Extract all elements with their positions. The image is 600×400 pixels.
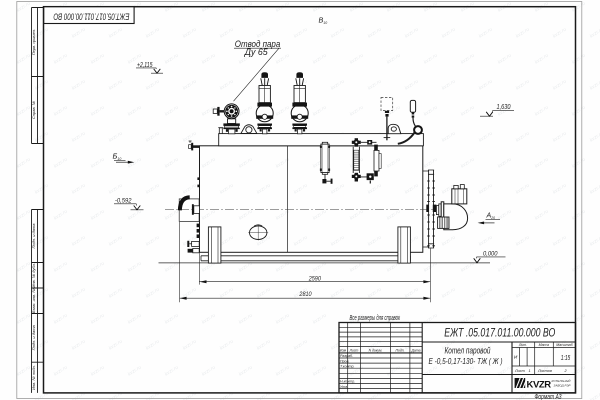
- svg-text:Справ. №: Справ. №: [31, 100, 36, 119]
- svg-text:kvzr.ru: kvzr.ru: [423, 312, 439, 325]
- svg-text:kvzr.ru: kvzr.ru: [90, 260, 106, 273]
- svg-text:kvzr.ru: kvzr.ru: [552, 130, 568, 143]
- svg-text:kvzr.ru: kvzr.ru: [275, 260, 291, 273]
- svg-text:kvzr.ru: kvzr.ru: [404, 182, 420, 195]
- svg-text:kvzr.ru: kvzr.ru: [515, 130, 531, 143]
- svg-text:kvzr.ru: kvzr.ru: [460, 260, 476, 273]
- svg-text:kvzr.ru: kvzr.ru: [16, 208, 32, 221]
- svg-text:0,000: 0,000: [483, 251, 498, 258]
- svg-text:kvzr.ru: kvzr.ru: [145, 182, 161, 195]
- svg-text:kvzr.ru: kvzr.ru: [201, 156, 217, 169]
- svg-text:Все размеры для справок: Все размеры для справок: [350, 314, 401, 322]
- svg-text:Лист: Лист: [514, 369, 525, 373]
- svg-text:1:15: 1:15: [561, 353, 571, 362]
- svg-text:kvzr.ru: kvzr.ru: [478, 234, 494, 247]
- svg-text:kvzr.ru: kvzr.ru: [127, 208, 143, 221]
- svg-text:kvzr.ru: kvzr.ru: [589, 26, 600, 39]
- svg-text:kvzr.ru: kvzr.ru: [589, 338, 600, 351]
- svg-text:kvzr.ru: kvzr.ru: [219, 26, 235, 39]
- svg-text:kvzr.ru: kvzr.ru: [404, 78, 420, 91]
- svg-text:Утв.: Утв.: [340, 385, 348, 389]
- svg-text:kvzr.ru: kvzr.ru: [534, 312, 550, 325]
- svg-text:kvzr.ru: kvzr.ru: [386, 364, 402, 377]
- svg-text:kvzr.ru: kvzr.ru: [53, 104, 69, 117]
- svg-text:kvzr.ru: kvzr.ru: [312, 260, 328, 273]
- svg-text:kvzr.ru: kvzr.ru: [404, 286, 420, 299]
- svg-text:kvzr.ru: kvzr.ru: [571, 104, 587, 117]
- svg-text:kvzr.ru: kvzr.ru: [127, 312, 143, 325]
- svg-text:Пров.: Пров.: [340, 359, 349, 363]
- svg-text:kvzr.ru: kvzr.ru: [127, 104, 143, 117]
- svg-text:kvzr.ru: kvzr.ru: [108, 182, 124, 195]
- svg-text:kvzr.ru: kvzr.ru: [367, 26, 383, 39]
- svg-text:kvzr.ru: kvzr.ru: [256, 182, 272, 195]
- svg-text:kvzr.ru: kvzr.ru: [552, 182, 568, 195]
- svg-text:kvzr.ru: kvzr.ru: [589, 286, 600, 299]
- svg-text:Е -0,5-0,17-130- ТЖ ( Ж ): Е -0,5-0,17-130- ТЖ ( Ж ): [429, 357, 503, 366]
- svg-text:Котел паровой: Котел паровой: [445, 346, 491, 356]
- svg-text:kvzr.ru: kvzr.ru: [16, 260, 32, 273]
- svg-text:kvzr.ru: kvzr.ru: [497, 364, 513, 377]
- svg-text:Масштаб: Масштаб: [556, 343, 573, 347]
- svg-text:kvzr.ru: kvzr.ru: [423, 364, 439, 377]
- svg-text:2590: 2590: [308, 275, 321, 282]
- svg-text:Лит.: Лит.: [518, 343, 527, 347]
- svg-text:2810: 2810: [299, 291, 312, 298]
- svg-text:ЕЖТ.05.017.011.00.000 ВО: ЕЖТ.05.017.011.00.000 ВО: [54, 11, 130, 21]
- svg-text:kvzr.ru: kvzr.ru: [441, 234, 457, 247]
- svg-text:kvzr.ru: kvzr.ru: [515, 182, 531, 195]
- svg-text:kvzr.ru: kvzr.ru: [108, 130, 124, 143]
- svg-text:kvzr.ru: kvzr.ru: [312, 208, 328, 221]
- svg-text:И: И: [514, 354, 518, 360]
- svg-text:kvzr.ru: kvzr.ru: [145, 338, 161, 351]
- svg-text:kvzr.ru: kvzr.ru: [108, 338, 124, 351]
- svg-text:kvzr.ru: kvzr.ru: [589, 182, 600, 195]
- svg-text:kvzr.ru: kvzr.ru: [460, 52, 476, 65]
- svg-text:kvzr.ru: kvzr.ru: [478, 78, 494, 91]
- svg-text:kvzr.ru: kvzr.ru: [515, 286, 531, 299]
- svg-text:kvzr.ru: kvzr.ru: [219, 182, 235, 195]
- svg-text:kvzr.ru: kvzr.ru: [497, 52, 513, 65]
- svg-text:kvzr.ru: kvzr.ru: [478, 286, 494, 299]
- svg-text:Масса: Масса: [539, 343, 549, 347]
- svg-text:Перв. примен.: Перв. примен.: [31, 29, 36, 56]
- svg-text:Взам. инв. №: Взам. инв. №: [31, 288, 36, 313]
- svg-text:kvzr.ru: kvzr.ru: [589, 234, 600, 247]
- svg-text:kvzr.ru: kvzr.ru: [164, 364, 180, 377]
- svg-text:kvzr.ru: kvzr.ru: [293, 234, 309, 247]
- svg-text:kvzr.ru: kvzr.ru: [460, 364, 476, 377]
- svg-text:kvzr.ru: kvzr.ru: [552, 234, 568, 247]
- svg-text:kvzr.ru: kvzr.ru: [571, 52, 587, 65]
- svg-text:В10: В10: [319, 15, 328, 25]
- svg-text:kvzr.ru: kvzr.ru: [349, 104, 365, 117]
- svg-text:kvzr.ru: kvzr.ru: [201, 52, 217, 65]
- svg-text:kvzr.ru: kvzr.ru: [16, 156, 32, 169]
- svg-text:kvzr.ru: kvzr.ru: [16, 0, 32, 13]
- svg-text:kvzr.ru: kvzr.ru: [53, 156, 69, 169]
- svg-text:kvzr.ru: kvzr.ru: [145, 26, 161, 39]
- svg-text:kvzr.ru: kvzr.ru: [312, 52, 328, 65]
- svg-text:kvzr.ru: kvzr.ru: [441, 286, 457, 299]
- svg-text:Разраб.: Разраб.: [340, 354, 353, 358]
- svg-text:kvzr.ru: kvzr.ru: [201, 364, 217, 377]
- svg-text:Лист: Лист: [349, 349, 359, 353]
- svg-text:kvzr.ru: kvzr.ru: [275, 364, 291, 377]
- svg-text:kvzr.ru: kvzr.ru: [423, 156, 439, 169]
- svg-text:kvzr.ru: kvzr.ru: [71, 78, 87, 91]
- svg-text:kvzr.ru: kvzr.ru: [238, 364, 254, 377]
- svg-text:+2,115: +2,115: [137, 60, 153, 69]
- svg-text:kvzr.ru: kvzr.ru: [275, 156, 291, 169]
- svg-text:kvzr.ru: kvzr.ru: [367, 78, 383, 91]
- svg-text:kvzr.ru: kvzr.ru: [460, 312, 476, 325]
- svg-text:Листов: Листов: [537, 369, 552, 373]
- svg-text:kvzr.ru: kvzr.ru: [238, 156, 254, 169]
- svg-text:kvzr.ru: kvzr.ru: [497, 260, 513, 273]
- svg-text:kvzr.ru: kvzr.ru: [534, 208, 550, 221]
- svg-text:КОТЕЛЬНЫЙ: КОТЕЛЬНЫЙ: [552, 379, 572, 383]
- svg-text:kvzr.ru: kvzr.ru: [108, 286, 124, 299]
- svg-text:kvzr.ru: kvzr.ru: [71, 338, 87, 351]
- svg-text:kvzr.ru: kvzr.ru: [34, 338, 50, 351]
- svg-text:kvzr.ru: kvzr.ru: [182, 182, 198, 195]
- svg-text:Подп. и дата: Подп. и дата: [31, 325, 36, 351]
- svg-text:kvzr.ru: kvzr.ru: [349, 260, 365, 273]
- svg-text:kvzr.ru: kvzr.ru: [145, 234, 161, 247]
- svg-text:kvzr.ru: kvzr.ru: [182, 26, 198, 39]
- svg-text:kvzr.ru: kvzr.ru: [201, 208, 217, 221]
- svg-text:kvzr.ru: kvzr.ru: [16, 312, 32, 325]
- svg-text:kvzr.ru: kvzr.ru: [34, 26, 50, 39]
- svg-text:2: 2: [564, 369, 568, 373]
- svg-text:kvzr.ru: kvzr.ru: [367, 286, 383, 299]
- svg-text:kvzr.ru: kvzr.ru: [34, 130, 50, 143]
- svg-text:kvzr.ru: kvzr.ru: [386, 208, 402, 221]
- svg-text:kvzr.ru: kvzr.ru: [552, 26, 568, 39]
- svg-text:kvzr.ru: kvzr.ru: [182, 338, 198, 351]
- svg-text:kvzr.ru: kvzr.ru: [108, 78, 124, 91]
- svg-text:kvzr.ru: kvzr.ru: [90, 208, 106, 221]
- svg-text:kvzr.ru: kvzr.ru: [53, 208, 69, 221]
- svg-text:kvzr.ru: kvzr.ru: [293, 26, 309, 39]
- svg-text:kvzr.ru: kvzr.ru: [238, 104, 254, 117]
- svg-text:kvzr.ru: kvzr.ru: [90, 312, 106, 325]
- svg-text:kvzr.ru: kvzr.ru: [478, 130, 494, 143]
- svg-text:kvzr.ru: kvzr.ru: [71, 26, 87, 39]
- svg-text:ЕЖТ .05.017.011.00.000 ВО: ЕЖТ .05.017.011.00.000 ВО: [444, 325, 555, 339]
- svg-text:kvzr.ru: kvzr.ru: [145, 130, 161, 143]
- svg-text:kvzr.ru: kvzr.ru: [16, 104, 32, 117]
- svg-text:Инв. № подл.: Инв. № подл.: [31, 365, 36, 390]
- svg-text:kvzr.ru: kvzr.ru: [312, 364, 328, 377]
- svg-text:kvzr.ru: kvzr.ru: [53, 364, 69, 377]
- svg-text:kvzr.ru: kvzr.ru: [349, 52, 365, 65]
- svg-text:kvzr.ru: kvzr.ru: [275, 208, 291, 221]
- svg-text:kvzr.ru: kvzr.ru: [515, 26, 531, 39]
- svg-text:kvzr.ru: kvzr.ru: [275, 312, 291, 325]
- svg-text:kvzr.ru: kvzr.ru: [275, 104, 291, 117]
- svg-text:kvzr.ru: kvzr.ru: [108, 234, 124, 247]
- svg-text:kvzr.ru: kvzr.ru: [497, 312, 513, 325]
- svg-text:kvzr.ru: kvzr.ru: [219, 286, 235, 299]
- svg-text:kvzr.ru: kvzr.ru: [127, 364, 143, 377]
- svg-text:kvzr.ru: kvzr.ru: [386, 156, 402, 169]
- svg-text:Изм: Изм: [340, 349, 347, 353]
- svg-text:kvzr.ru: kvzr.ru: [478, 26, 494, 39]
- svg-text:kvzr.ru: kvzr.ru: [423, 104, 439, 117]
- svg-text:kvzr.ru: kvzr.ru: [127, 260, 143, 273]
- svg-text:kvzr.ru: kvzr.ru: [164, 208, 180, 221]
- svg-text:kvzr.ru: kvzr.ru: [164, 52, 180, 65]
- svg-text:kvzr.ru: kvzr.ru: [90, 156, 106, 169]
- svg-text:kvzr.ru: kvzr.ru: [552, 78, 568, 91]
- svg-text:kvzr.ru: kvzr.ru: [53, 52, 69, 65]
- svg-text:kvzr.ru: kvzr.ru: [164, 104, 180, 117]
- svg-text:kvzr.ru: kvzr.ru: [53, 260, 69, 273]
- svg-text:kvzr.ru: kvzr.ru: [367, 234, 383, 247]
- svg-text:kvzr.ru: kvzr.ru: [330, 26, 346, 39]
- svg-text:Н.контр.: Н.контр.: [340, 380, 355, 384]
- svg-text:Подп.: Подп.: [395, 349, 404, 353]
- svg-text:kvzr.ru: kvzr.ru: [108, 26, 124, 39]
- svg-text:kvzr.ru: kvzr.ru: [330, 182, 346, 195]
- svg-text:kvzr.ru: kvzr.ru: [441, 130, 457, 143]
- svg-text:kvzr.ru: kvzr.ru: [53, 312, 69, 325]
- svg-text:kvzr.ru: kvzr.ru: [238, 208, 254, 221]
- svg-text:kvzr.ru: kvzr.ru: [534, 260, 550, 273]
- svg-text:kvzr.ru: kvzr.ru: [219, 78, 235, 91]
- svg-text:kvzr.ru: kvzr.ru: [571, 156, 587, 169]
- svg-text:kvzr.ru: kvzr.ru: [90, 364, 106, 377]
- svg-text:kvzr.ru: kvzr.ru: [90, 52, 106, 65]
- svg-text:kvzr.ru: kvzr.ru: [71, 286, 87, 299]
- svg-text:kvzr.ru: kvzr.ru: [423, 260, 439, 273]
- svg-text:Дата: Дата: [411, 349, 421, 353]
- svg-text:1: 1: [529, 369, 531, 373]
- svg-text:kvzr.ru: kvzr.ru: [460, 156, 476, 169]
- svg-text:kvzr.ru: kvzr.ru: [34, 234, 50, 247]
- svg-text:ЗАВОД РЭР: ЗАВОД РЭР: [554, 384, 571, 388]
- svg-text:kvzr.ru: kvzr.ru: [71, 182, 87, 195]
- svg-text:kvzr.ru: kvzr.ru: [293, 182, 309, 195]
- svg-text:kvzr.ru: kvzr.ru: [256, 286, 272, 299]
- svg-text:kvzr.ru: kvzr.ru: [16, 364, 32, 377]
- svg-text:kvzr.ru: kvzr.ru: [238, 312, 254, 325]
- svg-text:kvzr.ru: kvzr.ru: [275, 52, 291, 65]
- svg-text:kvzr.ru: kvzr.ru: [34, 78, 50, 91]
- svg-text:kvzr.ru: kvzr.ru: [386, 52, 402, 65]
- svg-text:kvzr.ru: kvzr.ru: [312, 104, 328, 117]
- svg-text:kvzr.ru: kvzr.ru: [90, 104, 106, 117]
- svg-text:kvzr.ru: kvzr.ru: [571, 208, 587, 221]
- svg-text:kvzr.ru: kvzr.ru: [330, 286, 346, 299]
- svg-text:kvzr.ru: kvzr.ru: [34, 182, 50, 195]
- svg-text:kvzr.ru: kvzr.ru: [145, 286, 161, 299]
- svg-text:kvzr.ru: kvzr.ru: [515, 78, 531, 91]
- svg-text:kvzr.ru: kvzr.ru: [571, 260, 587, 273]
- svg-text:kvzr.ru: kvzr.ru: [349, 208, 365, 221]
- svg-text:kvzr.ru: kvzr.ru: [497, 156, 513, 169]
- svg-text:kvzr.ru: kvzr.ru: [71, 234, 87, 247]
- svg-text:kvzr.ru: kvzr.ru: [534, 104, 550, 117]
- svg-text:kvzr.ru: kvzr.ru: [256, 338, 272, 351]
- svg-text:kvzr.ru: kvzr.ru: [367, 182, 383, 195]
- svg-text:kvzr.ru: kvzr.ru: [441, 78, 457, 91]
- svg-text:kvzr.ru: kvzr.ru: [423, 52, 439, 65]
- svg-text:kvzr.ru: kvzr.ru: [71, 130, 87, 143]
- svg-text:kvzr.ru: kvzr.ru: [515, 234, 531, 247]
- svg-text:Т.контр.: Т.контр.: [340, 364, 355, 368]
- svg-text:kvzr.ru: kvzr.ru: [164, 156, 180, 169]
- svg-text:kvzr.ru: kvzr.ru: [164, 312, 180, 325]
- svg-text:kvzr.ru: kvzr.ru: [312, 312, 328, 325]
- svg-text:kvzr.ru: kvzr.ru: [589, 390, 600, 400]
- svg-text:1,630: 1,630: [497, 102, 512, 111]
- svg-text:kvzr.ru: kvzr.ru: [441, 26, 457, 39]
- svg-text:kvzr.ru: kvzr.ru: [534, 156, 550, 169]
- svg-text:kvzr.ru: kvzr.ru: [497, 208, 513, 221]
- svg-text:kvzr.ru: kvzr.ru: [589, 78, 600, 91]
- svg-text:kvzr.ru: kvzr.ru: [571, 312, 587, 325]
- svg-text:Формат А3: Формат А3: [535, 394, 562, 400]
- svg-text:N докум.: N докум.: [369, 349, 383, 353]
- svg-text:KVZR: KVZR: [527, 380, 552, 391]
- svg-text:kvzr.ru: kvzr.ru: [478, 182, 494, 195]
- svg-text:kvzr.ru: kvzr.ru: [404, 26, 420, 39]
- svg-text:kvzr.ru: kvzr.ru: [534, 52, 550, 65]
- svg-text:kvzr.ru: kvzr.ru: [293, 338, 309, 351]
- svg-text:kvzr.ru: kvzr.ru: [164, 260, 180, 273]
- svg-text:kvzr.ru: kvzr.ru: [589, 130, 600, 143]
- svg-text:Б10: Б10: [113, 152, 122, 162]
- svg-text:kvzr.ru: kvzr.ru: [201, 312, 217, 325]
- svg-text:А20: А20: [486, 213, 496, 221]
- svg-text:kvzr.ru: kvzr.ru: [330, 78, 346, 91]
- svg-text:kvzr.ru: kvzr.ru: [330, 234, 346, 247]
- svg-text:kvzr.ru: kvzr.ru: [16, 52, 32, 65]
- svg-text:Подп. и дата: Подп. и дата: [31, 223, 36, 249]
- svg-text:kvzr.ru: kvzr.ru: [460, 104, 476, 117]
- svg-text:Инв. № дубл.: Инв. № дубл.: [31, 263, 36, 288]
- svg-text:kvzr.ru: kvzr.ru: [238, 260, 254, 273]
- svg-text:kvzr.ru: kvzr.ru: [219, 338, 235, 351]
- svg-text:kvzr.ru: kvzr.ru: [145, 78, 161, 91]
- svg-text:kvzr.ru: kvzr.ru: [571, 364, 587, 377]
- svg-text:kvzr.ru: kvzr.ru: [552, 286, 568, 299]
- svg-text:kvzr.ru: kvzr.ru: [182, 78, 198, 91]
